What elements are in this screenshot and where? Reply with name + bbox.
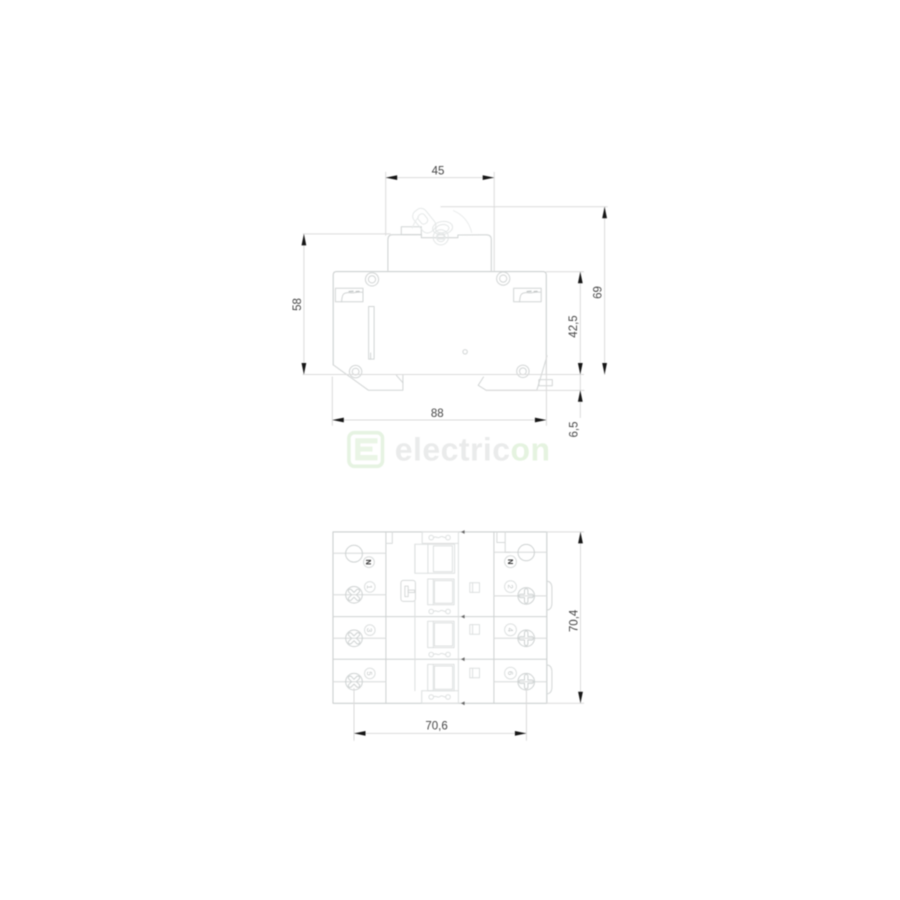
svg-text:5: 5 <box>365 671 374 675</box>
svg-text:70,6: 70,6 <box>425 721 447 733</box>
svg-text:88: 88 <box>431 408 444 420</box>
svg-text:58: 58 <box>292 298 304 311</box>
svg-text:electricon: electricon <box>395 432 551 468</box>
svg-text:2: 2 <box>506 585 515 589</box>
svg-text:4: 4 <box>506 628 515 632</box>
svg-text:6,5: 6,5 <box>568 422 580 438</box>
svg-text:3: 3 <box>365 628 374 632</box>
svg-text:42,5: 42,5 <box>568 315 580 337</box>
svg-text:N: N <box>506 559 515 564</box>
svg-text:70,4: 70,4 <box>569 609 581 632</box>
svg-text:N: N <box>364 559 373 564</box>
svg-text:6: 6 <box>506 671 515 675</box>
svg-text:69: 69 <box>593 286 605 299</box>
svg-text:45: 45 <box>432 166 445 178</box>
svg-text:1: 1 <box>365 585 374 589</box>
